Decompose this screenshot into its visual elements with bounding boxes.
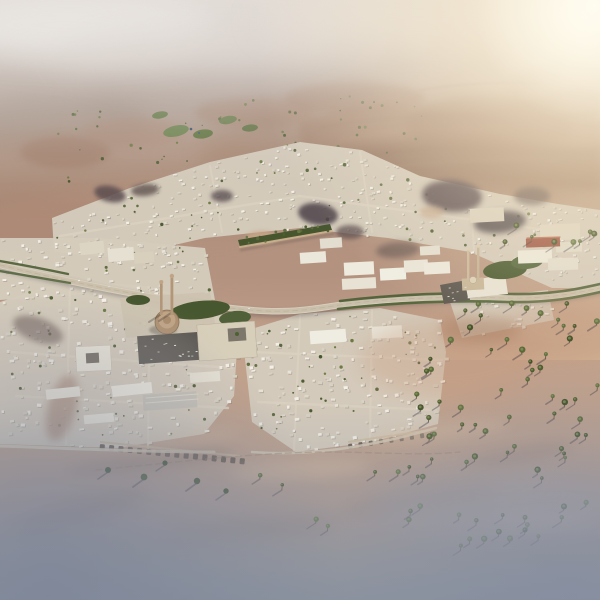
rendered-scene: [0, 0, 600, 600]
sun-glow-core: [0, 0, 600, 600]
aerial-city-rendering: Aerial rendering of a desert city master…: [0, 0, 600, 600]
